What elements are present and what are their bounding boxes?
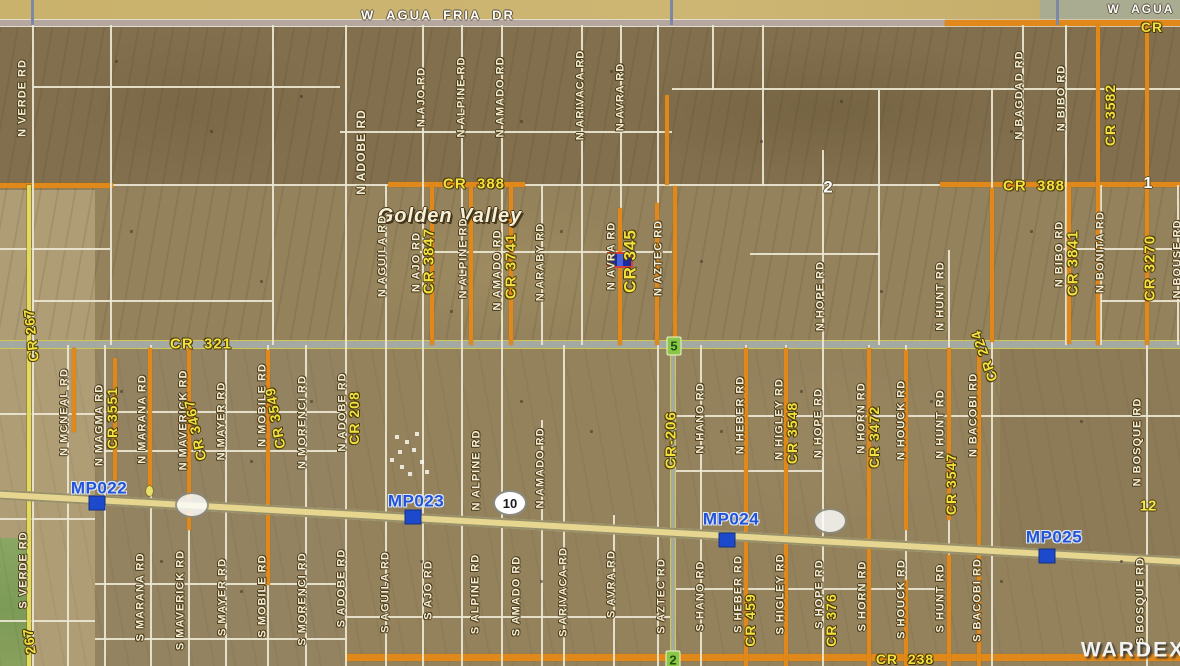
terrain-speck: [860, 450, 863, 453]
road-segment: [1056, 0, 1059, 25]
road-segment: [67, 345, 69, 666]
terrain-speck: [300, 95, 303, 98]
road-segment: [750, 253, 880, 255]
building-dot: [400, 465, 404, 469]
road-segment: [110, 25, 112, 345]
building-dot: [405, 440, 409, 444]
terrain-speck: [250, 460, 253, 463]
road-segment: [430, 186, 434, 345]
terrain-speck: [880, 290, 883, 293]
road-segment: [95, 583, 345, 585]
building-dot: [412, 448, 416, 452]
road-segment: [1022, 25, 1024, 185]
road-segment: [1096, 25, 1100, 345]
highway-shield-blank: [813, 508, 847, 534]
highway-shield-blank: [175, 492, 209, 518]
road-segment: [672, 88, 1180, 90]
terrain-speck: [450, 310, 453, 313]
road-segment: [618, 208, 622, 345]
terrain-speck: [800, 390, 803, 393]
road-segment: [95, 638, 345, 640]
road-segment: [904, 350, 908, 530]
road-segment: [541, 420, 543, 666]
road-segment: [0, 620, 95, 622]
road-segment: [563, 345, 565, 666]
terrain-speck: [420, 560, 423, 563]
terrain-speck: [760, 140, 763, 143]
road-segment: [31, 0, 34, 25]
section-badge-5: 5: [667, 337, 682, 356]
building-dot: [425, 470, 429, 474]
building-dot: [398, 450, 402, 454]
terrain-speck: [310, 400, 313, 403]
road-segment: [33, 86, 340, 88]
road-segment: [991, 90, 993, 666]
road-segment: [95, 450, 345, 452]
road-segment: [0, 248, 110, 250]
road-segment: [1100, 300, 1180, 302]
road-segment: [673, 186, 677, 344]
road-segment: [345, 25, 347, 666]
subject-property-marker[interactable]: [607, 252, 633, 268]
terrain-speck: [700, 260, 703, 263]
road-segment: [977, 348, 981, 666]
terrain-speck: [860, 600, 863, 603]
road-segment: [904, 580, 908, 666]
road-segment: [762, 25, 764, 185]
highway-shield-10: 10: [493, 490, 527, 516]
road-segment: [420, 251, 672, 253]
road-segment: [665, 95, 669, 185]
road-segment: [27, 185, 31, 666]
road-segment: [822, 150, 824, 666]
road-segment: [422, 25, 424, 666]
road-segment: [32, 25, 34, 666]
road-end-dot: [146, 486, 153, 496]
road-segment: [867, 348, 871, 666]
road-segment: [272, 25, 274, 345]
road-segment: [613, 515, 615, 666]
building-dot: [395, 435, 399, 439]
terrain-speck: [610, 70, 613, 73]
road-segment: [95, 411, 345, 413]
road-segment: [1177, 185, 1179, 345]
road-segment: [345, 616, 672, 618]
terrain-speck: [1000, 580, 1003, 583]
road-segment: [990, 188, 994, 342]
building-dot: [390, 458, 394, 462]
road-segment: [0, 183, 113, 188]
building-dot: [420, 460, 424, 464]
milepost-marker: [1039, 549, 1056, 564]
map-canvas[interactable]: 1052 W AGUA FRIA DRW AGUACRN VERDE RDN A…: [0, 0, 1180, 666]
terrain-speck: [130, 230, 133, 233]
road-segment: [148, 348, 152, 488]
terrain-speck: [540, 580, 543, 583]
road-segment: [878, 90, 880, 345]
road-segment: [672, 588, 942, 590]
terrain-speck: [260, 280, 263, 283]
road-segment: [385, 185, 387, 666]
terrain-speck: [520, 400, 523, 403]
road-segment: [947, 555, 951, 666]
terrain-speck: [210, 130, 213, 133]
road-segment: [940, 182, 1180, 187]
road-segment: [113, 358, 117, 480]
milepost-marker: [719, 533, 736, 548]
road-segment: [501, 25, 503, 666]
building-dot: [415, 432, 419, 436]
road-segment: [1100, 185, 1102, 345]
terrain-speck: [120, 390, 123, 393]
road-segment: [712, 25, 714, 90]
terrain-speck: [520, 120, 523, 123]
street-label-w-agua: W AGUA: [1108, 3, 1175, 15]
milepost-marker: [89, 496, 106, 511]
road-segment: [0, 518, 95, 520]
road-segment: [1145, 25, 1149, 345]
road-segment: [388, 182, 525, 187]
road-segment: [1060, 248, 1180, 250]
terrain-speck: [700, 570, 703, 573]
road-segment: [671, 345, 675, 666]
road-segment: [266, 350, 270, 585]
road-segment: [461, 25, 463, 666]
road-segment: [655, 203, 659, 345]
terrain-speck: [1030, 230, 1033, 233]
building-dot: [408, 472, 412, 476]
road-segment: [1146, 345, 1148, 666]
road-segment: [345, 654, 1180, 661]
road-segment: [469, 186, 473, 345]
terrain-speck: [930, 400, 933, 403]
terrain-speck: [160, 560, 163, 563]
road-segment: [305, 345, 307, 666]
road-segment: [744, 348, 748, 666]
terrain-speck: [1120, 560, 1123, 563]
road-segment: [700, 345, 702, 666]
road-segment: [1067, 186, 1071, 344]
milepost-marker: [405, 510, 422, 525]
road-segment: [72, 348, 76, 432]
road-segment: [620, 25, 622, 213]
terrain-speck: [115, 60, 118, 63]
terrain-speck: [240, 590, 243, 593]
road-segment: [541, 185, 543, 345]
road-segment: [672, 415, 1180, 417]
road-segment: [0, 341, 1180, 348]
road-segment: [947, 348, 951, 520]
road-segment: [340, 131, 672, 133]
terrain-speck: [1010, 130, 1013, 133]
terrain-speck: [180, 420, 183, 423]
terrain-speck: [590, 430, 593, 433]
terrain-speck: [1080, 420, 1083, 423]
road-segment: [670, 0, 673, 25]
terrain-speck: [560, 230, 563, 233]
road-segment: [657, 25, 659, 666]
road-segment: [0, 413, 95, 415]
road-segment: [33, 300, 272, 302]
terrain-speck: [840, 100, 843, 103]
road-segment: [509, 186, 513, 345]
road-segment: [581, 25, 583, 345]
road-segment: [784, 348, 788, 666]
section-badge-2: 2: [666, 651, 681, 666]
terrain-speck: [720, 430, 723, 433]
